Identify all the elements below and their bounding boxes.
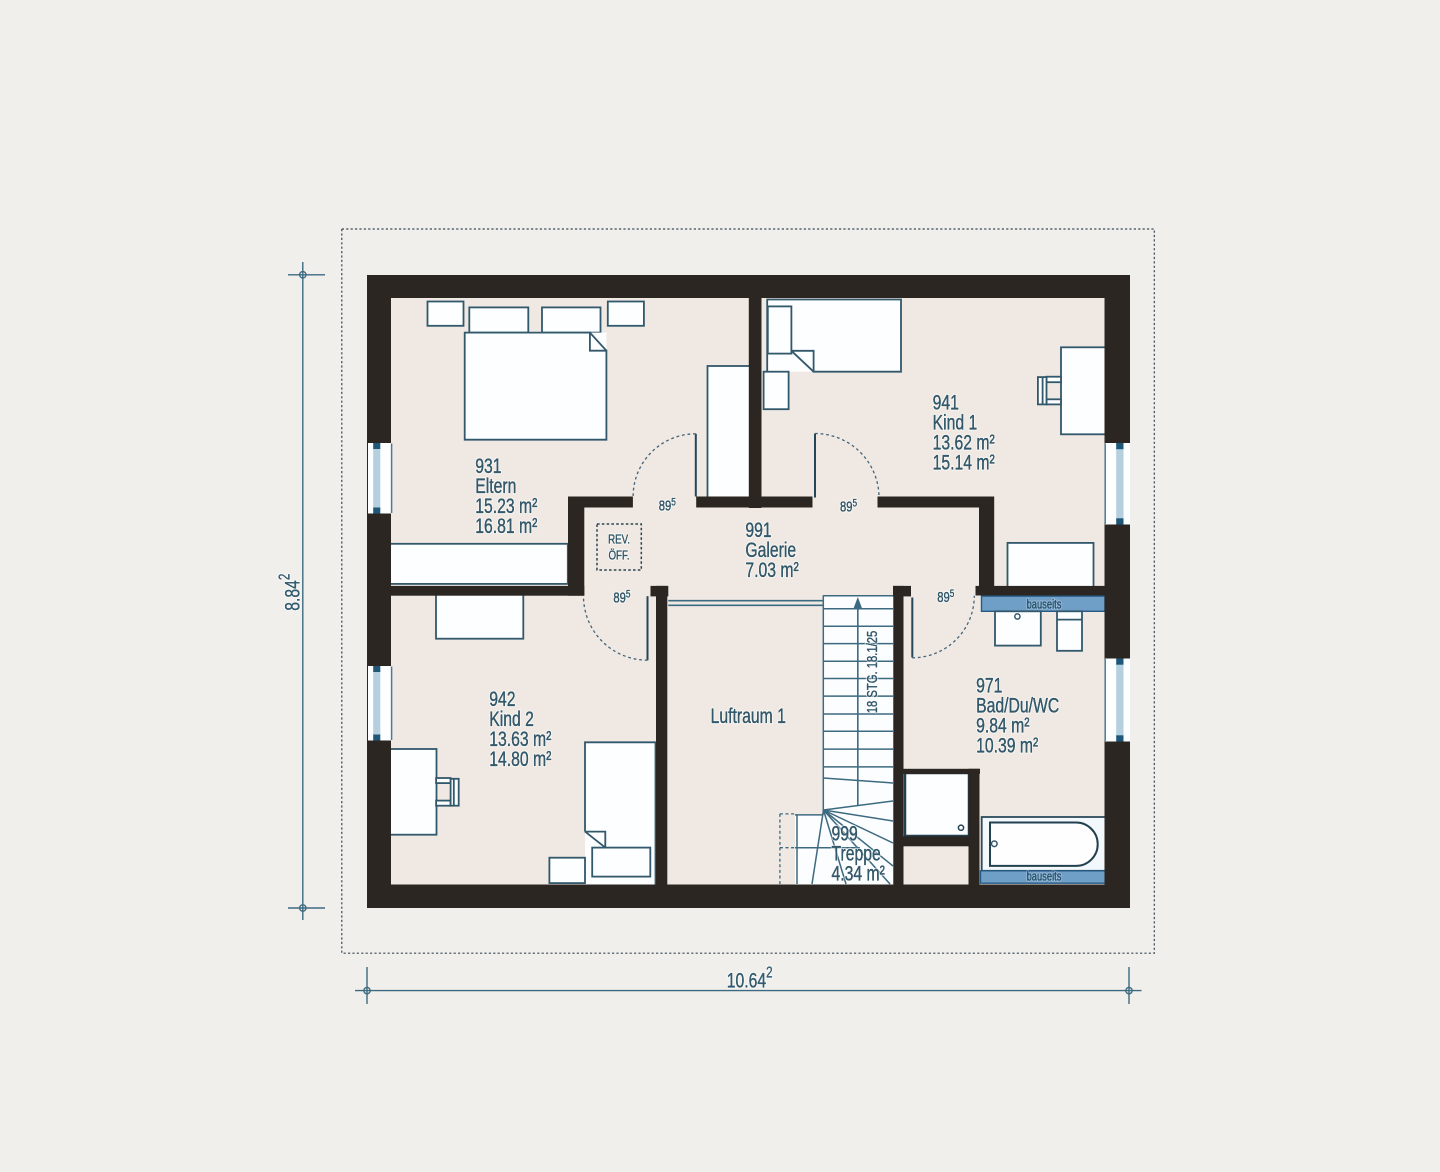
- svg-text:18 STG. 18.1/25: 18 STG. 18.1/25: [863, 631, 880, 714]
- svg-text:15.14 m²: 15.14 m²: [933, 450, 995, 474]
- svg-text:Luftraum 1: Luftraum 1: [711, 704, 786, 728]
- svg-text:bauseits: bauseits: [1027, 870, 1062, 884]
- svg-text:ÖFF.: ÖFF.: [608, 549, 629, 563]
- svg-text:REV.: REV.: [608, 533, 630, 547]
- svg-text:16.81 m²: 16.81 m²: [475, 514, 537, 538]
- svg-text:4.34 m²: 4.34 m²: [832, 861, 885, 885]
- svg-text:14.80 m²: 14.80 m²: [489, 747, 551, 771]
- svg-text:7.03 m²: 7.03 m²: [745, 558, 798, 582]
- svg-text:10.642: 10.642: [727, 964, 773, 992]
- svg-text:10.39 m²: 10.39 m²: [976, 733, 1038, 757]
- svg-text:bauseits: bauseits: [1027, 598, 1062, 612]
